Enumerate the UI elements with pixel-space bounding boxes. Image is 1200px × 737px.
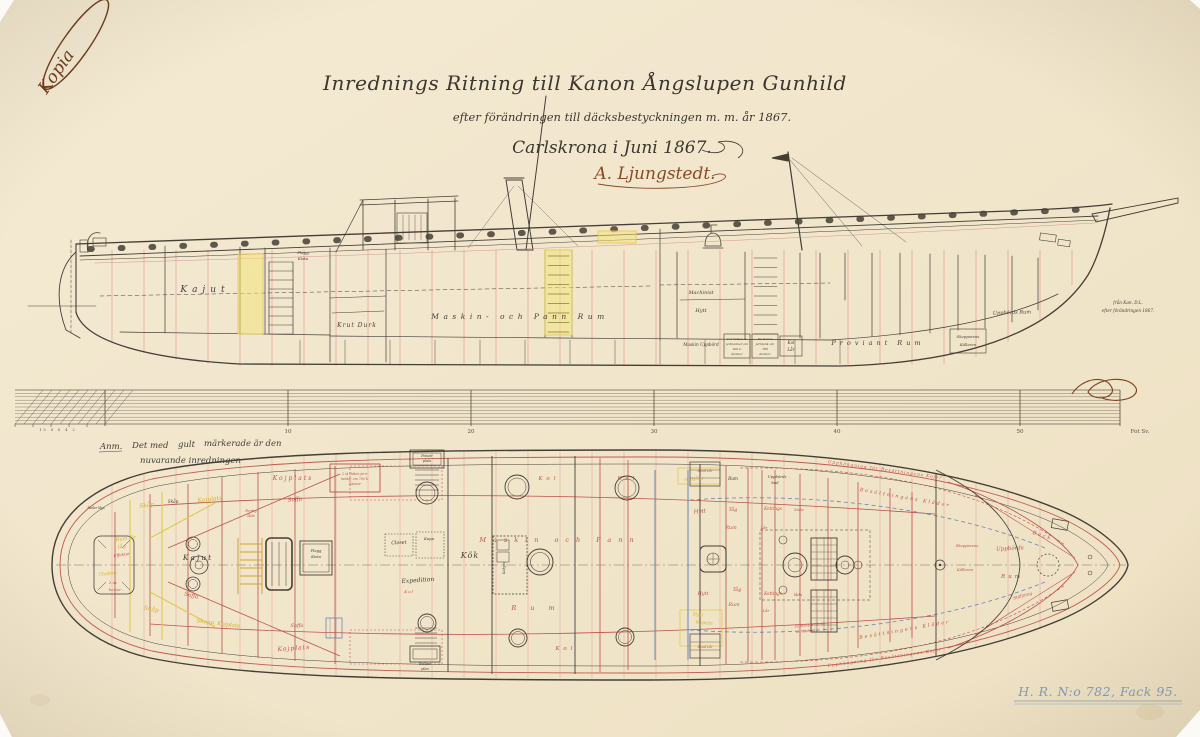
vignette [0, 0, 1200, 737]
drawing-sheet: Kopia Inrednings Ritning till Kanon Ångs… [0, 0, 1200, 737]
